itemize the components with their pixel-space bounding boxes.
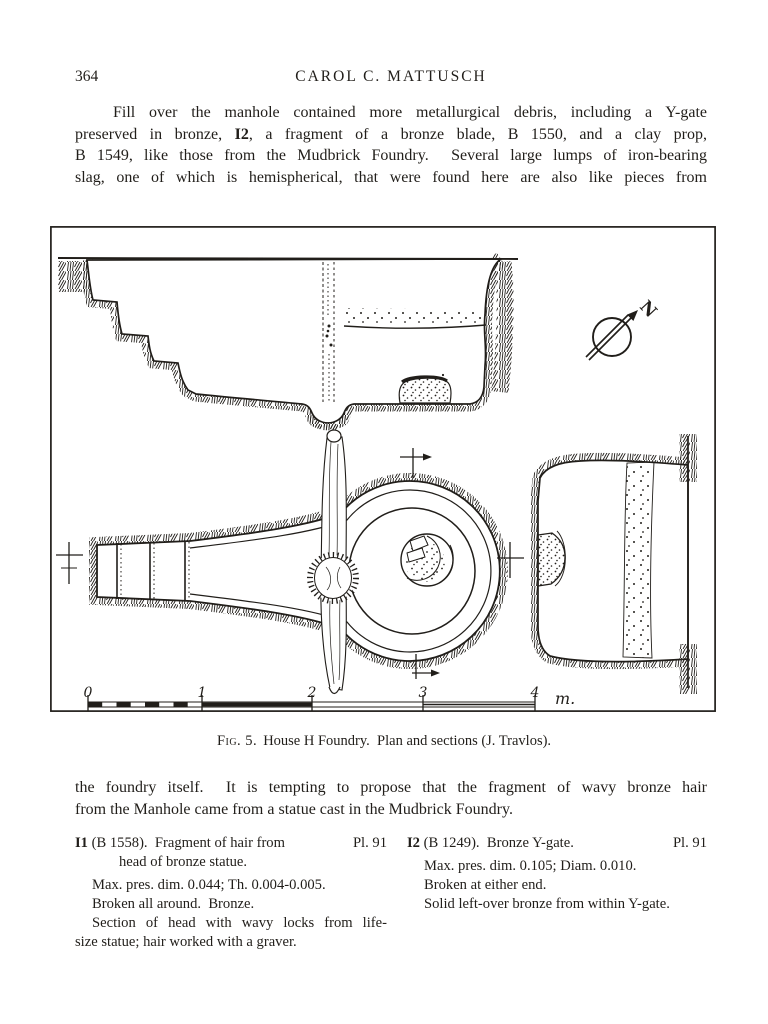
entry-dimensions: Max. pres. dim. 0.105; Diam. 0.010.: [407, 857, 707, 876]
entry-id: I2: [407, 835, 420, 851]
entry-heading: I1 (B 1558). Fragment of hair from Pl. 9…: [75, 834, 387, 853]
paragraph-line: from the Manhole came from a statue cast…: [75, 799, 707, 821]
plan-furnace-stone: [401, 534, 453, 586]
paragraph-line: B 1549, like those from the Mudbrick Fou…: [75, 145, 707, 167]
entry-description-line: Section of head with wavy locks from lif…: [75, 914, 387, 933]
intro-paragraph: Fill over the manhole contained more met…: [75, 102, 707, 188]
ground-surface-line: [58, 258, 518, 259]
page-header: 364 CAROL C. MATTUSCH: [75, 68, 707, 86]
closing-paragraph: the foundry itself. It is tempting to pr…: [75, 777, 707, 820]
entry-title-continuation: head of bronze statue.: [75, 853, 387, 872]
side-section-dotted-band: [623, 462, 654, 658]
scale-tick-label-4: 4: [530, 685, 540, 701]
entry-plate-ref: Pl. 91: [673, 834, 707, 853]
entry-title: (B 1249). Bronze Y-gate.: [420, 835, 574, 851]
figure-drawing: N: [50, 226, 716, 712]
caption-label: Fig. 5.: [217, 733, 257, 749]
entry-title: (B 1558). Fragment of hair from: [88, 835, 285, 851]
scale-tick-label-2: 2: [307, 685, 317, 701]
side-section-drawing: [538, 434, 697, 694]
section-stone-mound: [399, 374, 451, 403]
entry-condition: Broken all around. Bronze.: [75, 895, 387, 914]
paragraph-line: preserved in bronze, I2, a fragment of a…: [75, 124, 707, 146]
catalog: I1 (B 1558). Fragment of hair from Pl. 9…: [75, 834, 707, 952]
entry-condition: Broken at either end.: [407, 876, 707, 895]
catalog-ref-bold: I2: [235, 126, 249, 143]
page-number: 364: [75, 68, 98, 86]
figure-frame: N: [50, 226, 716, 712]
entry-heading: I2 (B 1249). Bronze Y-gate. Pl. 91: [407, 834, 707, 853]
section-fill-layer: [342, 308, 486, 328]
figure-caption: Fig. 5.House H Foundry. Plan and section…: [0, 733, 768, 750]
running-head: CAROL C. MATTUSCH: [75, 68, 707, 86]
entry-description-line: size statue; hair worked with a graver.: [75, 933, 387, 952]
scale-tick-label-0: 0: [84, 685, 93, 701]
scale-unit-label: m.: [555, 689, 575, 708]
caption-text: House H Foundry. Plan and sections (J. T…: [263, 733, 551, 749]
entry-plate-ref: Pl. 91: [353, 834, 387, 853]
paragraph-line: slag, one of which is hemispherical, tha…: [75, 167, 707, 189]
scale-tick-label-1: 1: [198, 685, 207, 701]
entry-dimensions: Max. pres. dim. 0.044; Th. 0.004-0.005.: [75, 876, 387, 895]
paragraph-line: Fill over the manhole contained more met…: [75, 102, 707, 124]
catalog-entry-I1: I1 (B 1558). Fragment of hair from Pl. 9…: [75, 834, 387, 952]
catalog-entry-I2: I2 (B 1249). Bronze Y-gate. Pl. 91 Max. …: [407, 834, 707, 952]
entry-description-line: Solid left-over bronze from within Y-gat…: [407, 895, 707, 914]
scale-tick-label-3: 3: [419, 685, 428, 701]
entry-id: I1: [75, 835, 88, 851]
paragraph-line: the foundry itself. It is tempting to pr…: [75, 777, 707, 799]
